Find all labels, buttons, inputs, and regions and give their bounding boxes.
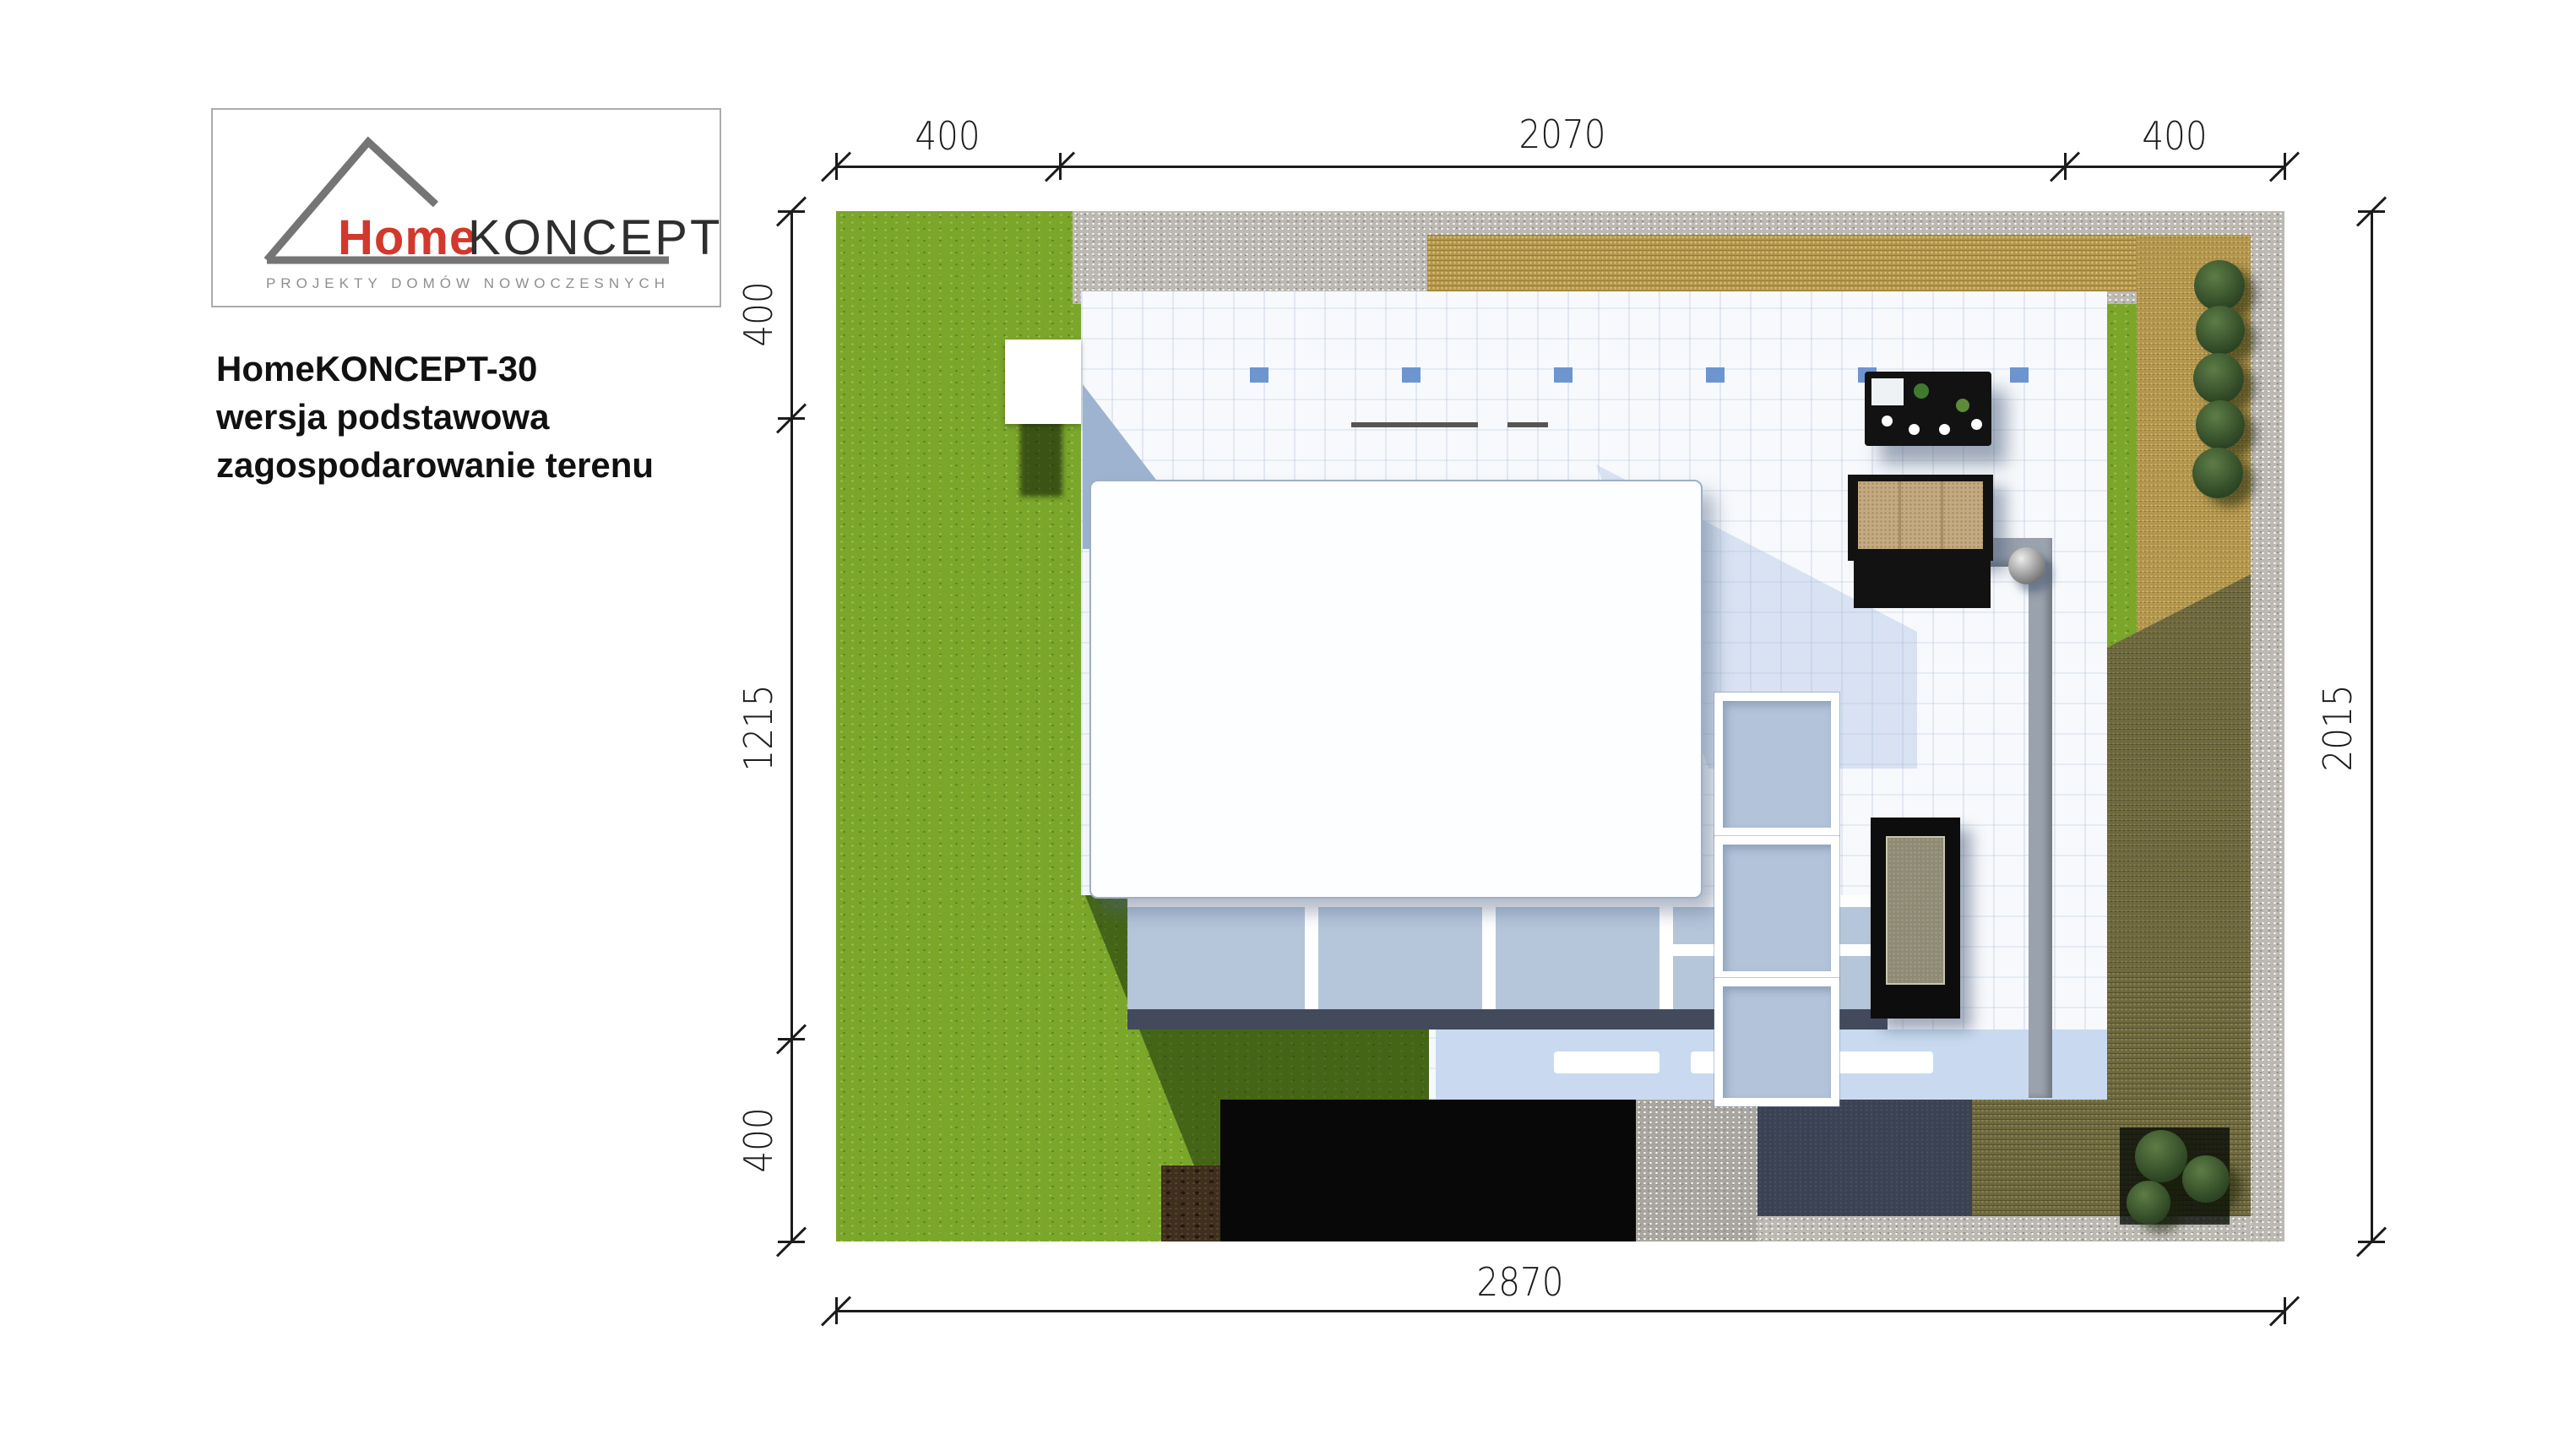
sofa-seam xyxy=(1941,481,1943,549)
terrace-stripe xyxy=(1554,1051,1660,1073)
roof-skylight xyxy=(1250,367,1268,383)
dim-label-bottom: 2870 xyxy=(1476,1259,1563,1305)
dim-label-left-top: 400 xyxy=(736,281,781,346)
project-title-line-2: wersja podstawowa xyxy=(216,393,654,441)
chimney xyxy=(1005,340,1081,424)
roof-joint-dash xyxy=(1351,422,1478,427)
shrub xyxy=(2194,260,2245,311)
roof-skylight xyxy=(1554,367,1573,383)
shadow-area-south xyxy=(1220,1100,1636,1241)
terrace-stripe xyxy=(1828,1051,1933,1073)
roof-skylight xyxy=(1402,367,1421,383)
sofa-shadow xyxy=(1854,561,1991,608)
concrete-wall-vertical xyxy=(2029,563,2052,1098)
sun-lounger xyxy=(1871,818,1960,1019)
dim-label-top-middle: 2070 xyxy=(1518,111,1605,157)
logo-tagline: PROJEKTY DOMÓW NOWOCZESNYCH xyxy=(265,275,671,292)
dim-line-left xyxy=(790,211,793,1241)
garden-sofa xyxy=(1848,475,1993,561)
site-plan-sheet: Home KONCEPT PROJEKTY DOMÓW NOWOCZESNYCH… xyxy=(0,0,2564,1456)
deck-beam xyxy=(1305,895,1318,1009)
lounger-pad xyxy=(1886,836,1945,985)
table-napkin xyxy=(1871,378,1904,405)
dim-line-bottom xyxy=(836,1310,2284,1312)
skylight-frame xyxy=(1714,836,1839,980)
planter-ball xyxy=(2008,547,2045,584)
shrub xyxy=(2196,400,2245,449)
roof-skylight xyxy=(2010,367,2029,383)
shrub xyxy=(2193,353,2244,404)
skylight-frame xyxy=(1714,978,1839,1106)
shrub xyxy=(2196,306,2245,355)
shrub xyxy=(2127,1181,2170,1225)
dirt-patch xyxy=(1161,1165,1222,1241)
paver-path-top xyxy=(1427,235,2251,291)
dim-label-left-bottom: 400 xyxy=(736,1107,781,1172)
table-plate xyxy=(1909,424,1920,435)
table-plate xyxy=(1971,419,1982,430)
shrub xyxy=(2182,1155,2230,1203)
roof-skylight xyxy=(1706,367,1725,383)
gravel-strip-south xyxy=(1636,1100,1757,1241)
project-title-line-1: HomeKONCEPT-30 xyxy=(216,345,654,393)
logo-box: Home KONCEPT PROJEKTY DOMÓW NOWOCZESNYCH xyxy=(211,108,721,307)
deck-beam xyxy=(1482,895,1496,1009)
roof-joint-dash xyxy=(1507,422,1548,427)
dim-label-top-right: 400 xyxy=(2142,113,2207,159)
table-plate xyxy=(1882,416,1893,426)
table-plant xyxy=(1956,399,1969,412)
dim-line-right xyxy=(2371,211,2373,1241)
logo-home-text: Home xyxy=(338,209,477,266)
shrub xyxy=(2192,448,2243,498)
dim-label-right: 2015 xyxy=(2315,684,2360,771)
dim-label-top-left: 400 xyxy=(915,113,980,159)
dim-label-left-middle: 1215 xyxy=(736,684,781,771)
project-title: HomeKONCEPT-30 wersja podstawowa zagospo… xyxy=(216,345,654,489)
site-plan xyxy=(836,211,2284,1241)
table-plate xyxy=(1939,424,1950,435)
skylight-frame xyxy=(1714,693,1839,836)
logo-koncept-text: KONCEPT xyxy=(468,209,722,266)
dining-table xyxy=(1865,372,1991,446)
main-roof xyxy=(1089,480,1703,899)
gravel-border-right xyxy=(2248,211,2284,1241)
project-title-line-3: zagospodarowanie terenu xyxy=(216,441,654,489)
deck-beam xyxy=(1660,895,1673,1009)
sofa-seam xyxy=(1899,481,1901,549)
sofa-cushions xyxy=(1858,481,1983,549)
table-plant xyxy=(1914,383,1929,399)
shrub xyxy=(2135,1130,2187,1182)
